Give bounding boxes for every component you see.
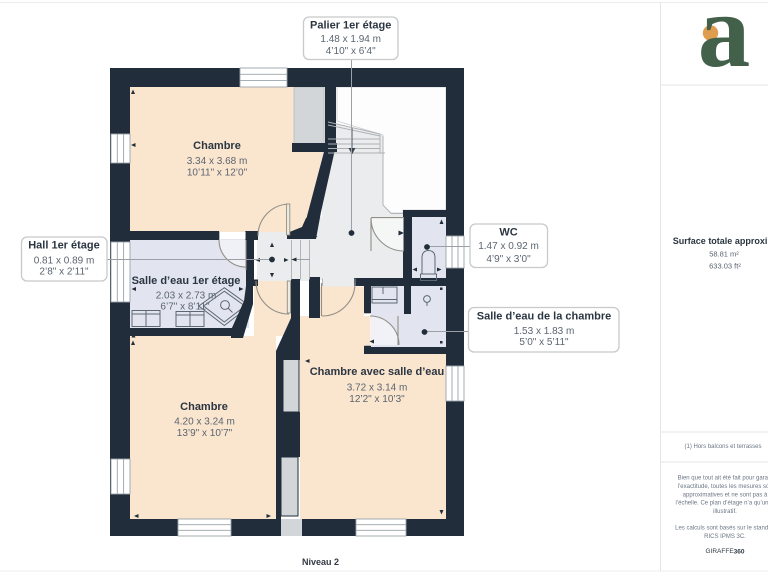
svg-text:0.81 x 0.89 m: 0.81 x 0.89 m [34, 256, 95, 267]
svg-text:Palier 1er étage: Palier 1er étage [310, 20, 391, 32]
svg-text:a: a [698, 0, 751, 89]
svg-text:l’échelle. Ce plan d’étage n’a: l’échelle. Ce plan d’étage n’a qu’un but [675, 501, 768, 507]
svg-text:3.72 x 3.14 m: 3.72 x 3.14 m [347, 383, 408, 394]
svg-text:4’10" x 6’4": 4’10" x 6’4" [326, 46, 376, 57]
svg-text:GIRAFFE360: GIRAFFE360 [705, 548, 744, 555]
svg-text:Chambre: Chambre [180, 401, 228, 413]
svg-text:approximatives et ne sont pas: approximatives et ne sont pas à [683, 492, 768, 498]
svg-text:Salle d’eau de la chambre: Salle d’eau de la chambre [477, 311, 612, 323]
svg-text:12’2" x 10’3": 12’2" x 10’3" [349, 394, 405, 405]
svg-text:WC: WC [499, 227, 517, 239]
svg-text:(1) Hors balcons et terrasses: (1) Hors balcons et terrasses [684, 444, 761, 450]
svg-text:2’8" x 2’11": 2’8" x 2’11" [39, 267, 89, 278]
svg-text:13’9" x 10’7": 13’9" x 10’7" [177, 428, 233, 439]
svg-text:Salle d’eau 1er étage: Salle d’eau 1er étage [132, 275, 241, 287]
svg-text:Niveau 2: Niveau 2 [302, 557, 339, 567]
svg-text:1.53 x 1.83 m: 1.53 x 1.83 m [514, 326, 575, 337]
svg-text:58.81 m²: 58.81 m² [709, 250, 739, 259]
svg-text:4.20 x 3.24 m: 4.20 x 3.24 m [174, 417, 235, 428]
svg-text:4’9" x 3’0": 4’9" x 3’0" [486, 254, 531, 265]
svg-text:RICS IPMS 3C.: RICS IPMS 3C. [704, 534, 746, 540]
svg-text:l’exactitude, toutes les mesur: l’exactitude, toutes les mesures sont [678, 484, 768, 490]
svg-text:2.03 x 2.73 m: 2.03 x 2.73 m [156, 291, 217, 302]
svg-text:633.03 ft²: 633.03 ft² [709, 262, 741, 271]
svg-text:Bien que tout ait été fait pou: Bien que tout ait été fait pour garantir [678, 476, 768, 482]
svg-text:Chambre: Chambre [193, 140, 241, 152]
svg-text:Hall 1er étage: Hall 1er étage [28, 240, 100, 252]
svg-text:illustratif.: illustratif. [713, 509, 737, 515]
svg-text:Surface totale approximative(1: Surface totale approximative(1) [673, 236, 768, 246]
svg-text:Les calculs sont basés sur le: Les calculs sont basés sur le standard [675, 526, 768, 532]
svg-text:6’7" x 8’11": 6’7" x 8’11" [160, 302, 210, 313]
svg-text:1.47 x 0.92 m: 1.47 x 0.92 m [478, 241, 539, 252]
svg-text:1.48 x 1.94 m: 1.48 x 1.94 m [320, 34, 381, 45]
svg-text:5’0" x 5’11": 5’0" x 5’11" [519, 337, 569, 348]
svg-text:3.34 x 3.68 m: 3.34 x 3.68 m [187, 156, 248, 167]
svg-text:10’11" x 12’0": 10’11" x 12’0" [187, 167, 248, 178]
svg-text:Chambre avec salle d’eau: Chambre avec salle d’eau [310, 366, 445, 378]
